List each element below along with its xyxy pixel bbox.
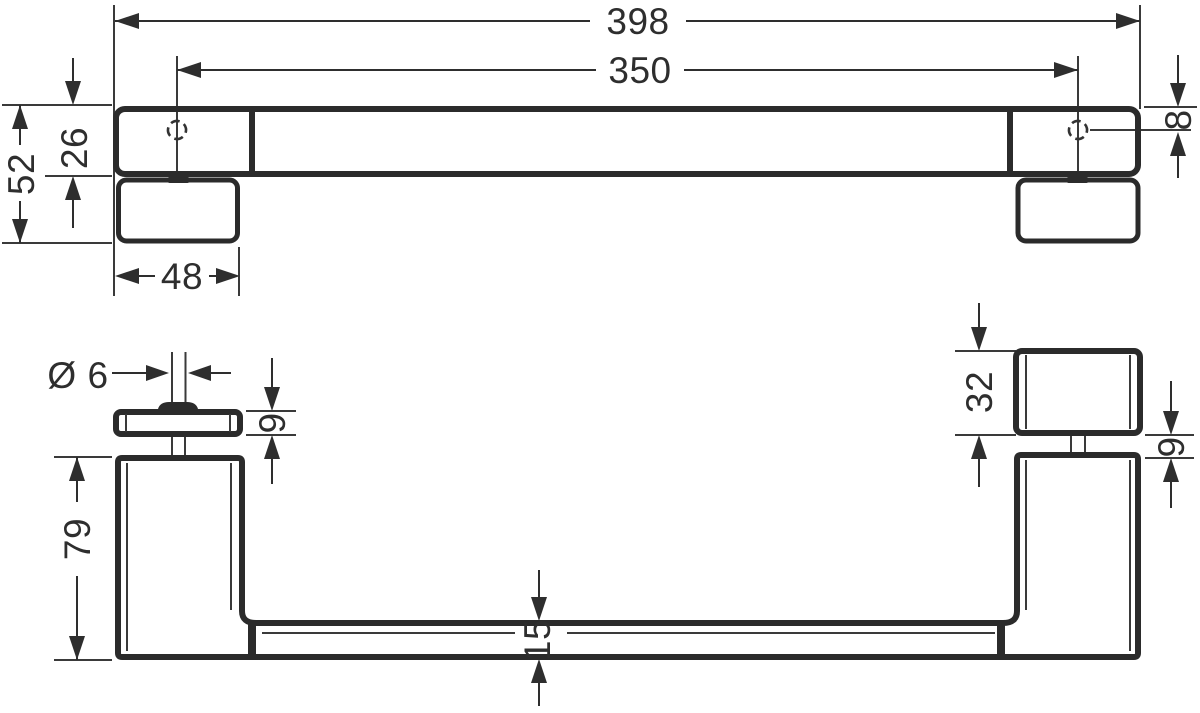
arrowhead-9R-bottom	[1163, 458, 1179, 482]
dim-text-left-flange-height: 9	[252, 412, 293, 433]
arrowhead-52-bottom	[12, 219, 28, 243]
dimension-bar-thickness: 15	[517, 570, 558, 706]
arrowhead-9L-top	[264, 387, 280, 411]
dimension-plate-height: 32	[959, 303, 1000, 487]
top-plan-view: 398 350 52 26	[1, 1, 1199, 297]
arrowhead-8-bottom	[1170, 132, 1186, 156]
dim-text-total-depth: 52	[1, 153, 42, 195]
dim-text-screw-diameter: Ø 6	[47, 355, 108, 396]
dim-text-plate-width: 48	[161, 256, 203, 297]
front-elevation-view: Ø 6 9 79 32	[47, 303, 1194, 706]
right-plate-assembly	[1016, 351, 1140, 452]
arrowhead-48-right	[216, 268, 240, 284]
arrowhead-52-top	[12, 105, 28, 129]
dimension-post-height: 79	[57, 457, 98, 660]
dim-text-hole-spacing: 350	[608, 50, 671, 91]
handle-front-view	[118, 455, 1138, 657]
arrowhead-398-left	[115, 13, 139, 29]
dimension-overall-length: 398	[115, 1, 1140, 42]
arrowhead-15-bottom	[531, 659, 547, 683]
left-flange-assembly	[116, 402, 240, 455]
front-view-extension-lines	[54, 351, 1194, 660]
arrowhead-79-bottom	[69, 636, 85, 660]
dimension-hole-spacing: 350	[177, 50, 1078, 91]
arrowhead-79-top	[69, 457, 85, 481]
left-screw-head-dome	[158, 402, 198, 409]
dimension-left-flange-height: 9	[252, 358, 293, 484]
arrowhead-350-left	[177, 62, 201, 78]
arrowhead-8-top	[1170, 83, 1186, 107]
dim-text-hole-offset: 8	[1158, 109, 1199, 130]
technical-drawing-canvas: 398 350 52 26	[0, 0, 1200, 713]
dimension-total-depth: 52	[1, 105, 42, 243]
dimension-right-flange-gap: 9	[1151, 381, 1192, 508]
wall-plates-top-view	[119, 177, 1139, 241]
right-plate-clip-notch	[1066, 177, 1089, 183]
arrowhead-32-top	[971, 327, 987, 351]
dim-text-bar-depth: 26	[54, 127, 95, 169]
arrowhead-9L-bottom	[264, 435, 280, 459]
arrowhead-dia6-right	[188, 365, 211, 381]
dimension-bar-depth: 26	[54, 58, 95, 228]
arrowhead-398-right	[1116, 13, 1140, 29]
dim-text-overall-length: 398	[606, 1, 669, 42]
arrowhead-350-right	[1054, 62, 1078, 78]
left-plate-clip-notch	[167, 177, 190, 183]
dimension-screw-diameter: Ø 6	[47, 355, 231, 396]
bar-top-view	[116, 109, 1138, 174]
arrowhead-48-left	[115, 268, 139, 284]
arrowhead-9R-top	[1163, 411, 1179, 435]
arrowhead-32-bottom	[971, 435, 987, 459]
dim-text-right-flange-gap: 9	[1151, 436, 1192, 457]
right-wall-plate-front-view	[1016, 351, 1140, 433]
right-wall-plate-top-view	[1018, 180, 1138, 241]
dim-text-bar-thickness: 15	[517, 619, 558, 661]
dim-text-post-height: 79	[57, 518, 98, 560]
left-wall-plate-top-view	[119, 180, 238, 241]
dimension-hole-offset: 8	[1158, 55, 1199, 178]
bar-outline-top-view	[116, 109, 1138, 174]
left-flange-front-view	[116, 412, 240, 434]
arrowhead-dia6-left	[146, 365, 169, 381]
handle-outline-front-view	[118, 455, 1138, 657]
dim-text-plate-height: 32	[959, 371, 1000, 413]
arrowhead-15-top	[531, 597, 547, 621]
top-view-extension-lines	[2, 5, 1197, 296]
arrowhead-26-bottom	[65, 176, 81, 200]
arrowhead-26-top	[65, 81, 81, 105]
dimension-plate-width: 48	[115, 256, 240, 297]
